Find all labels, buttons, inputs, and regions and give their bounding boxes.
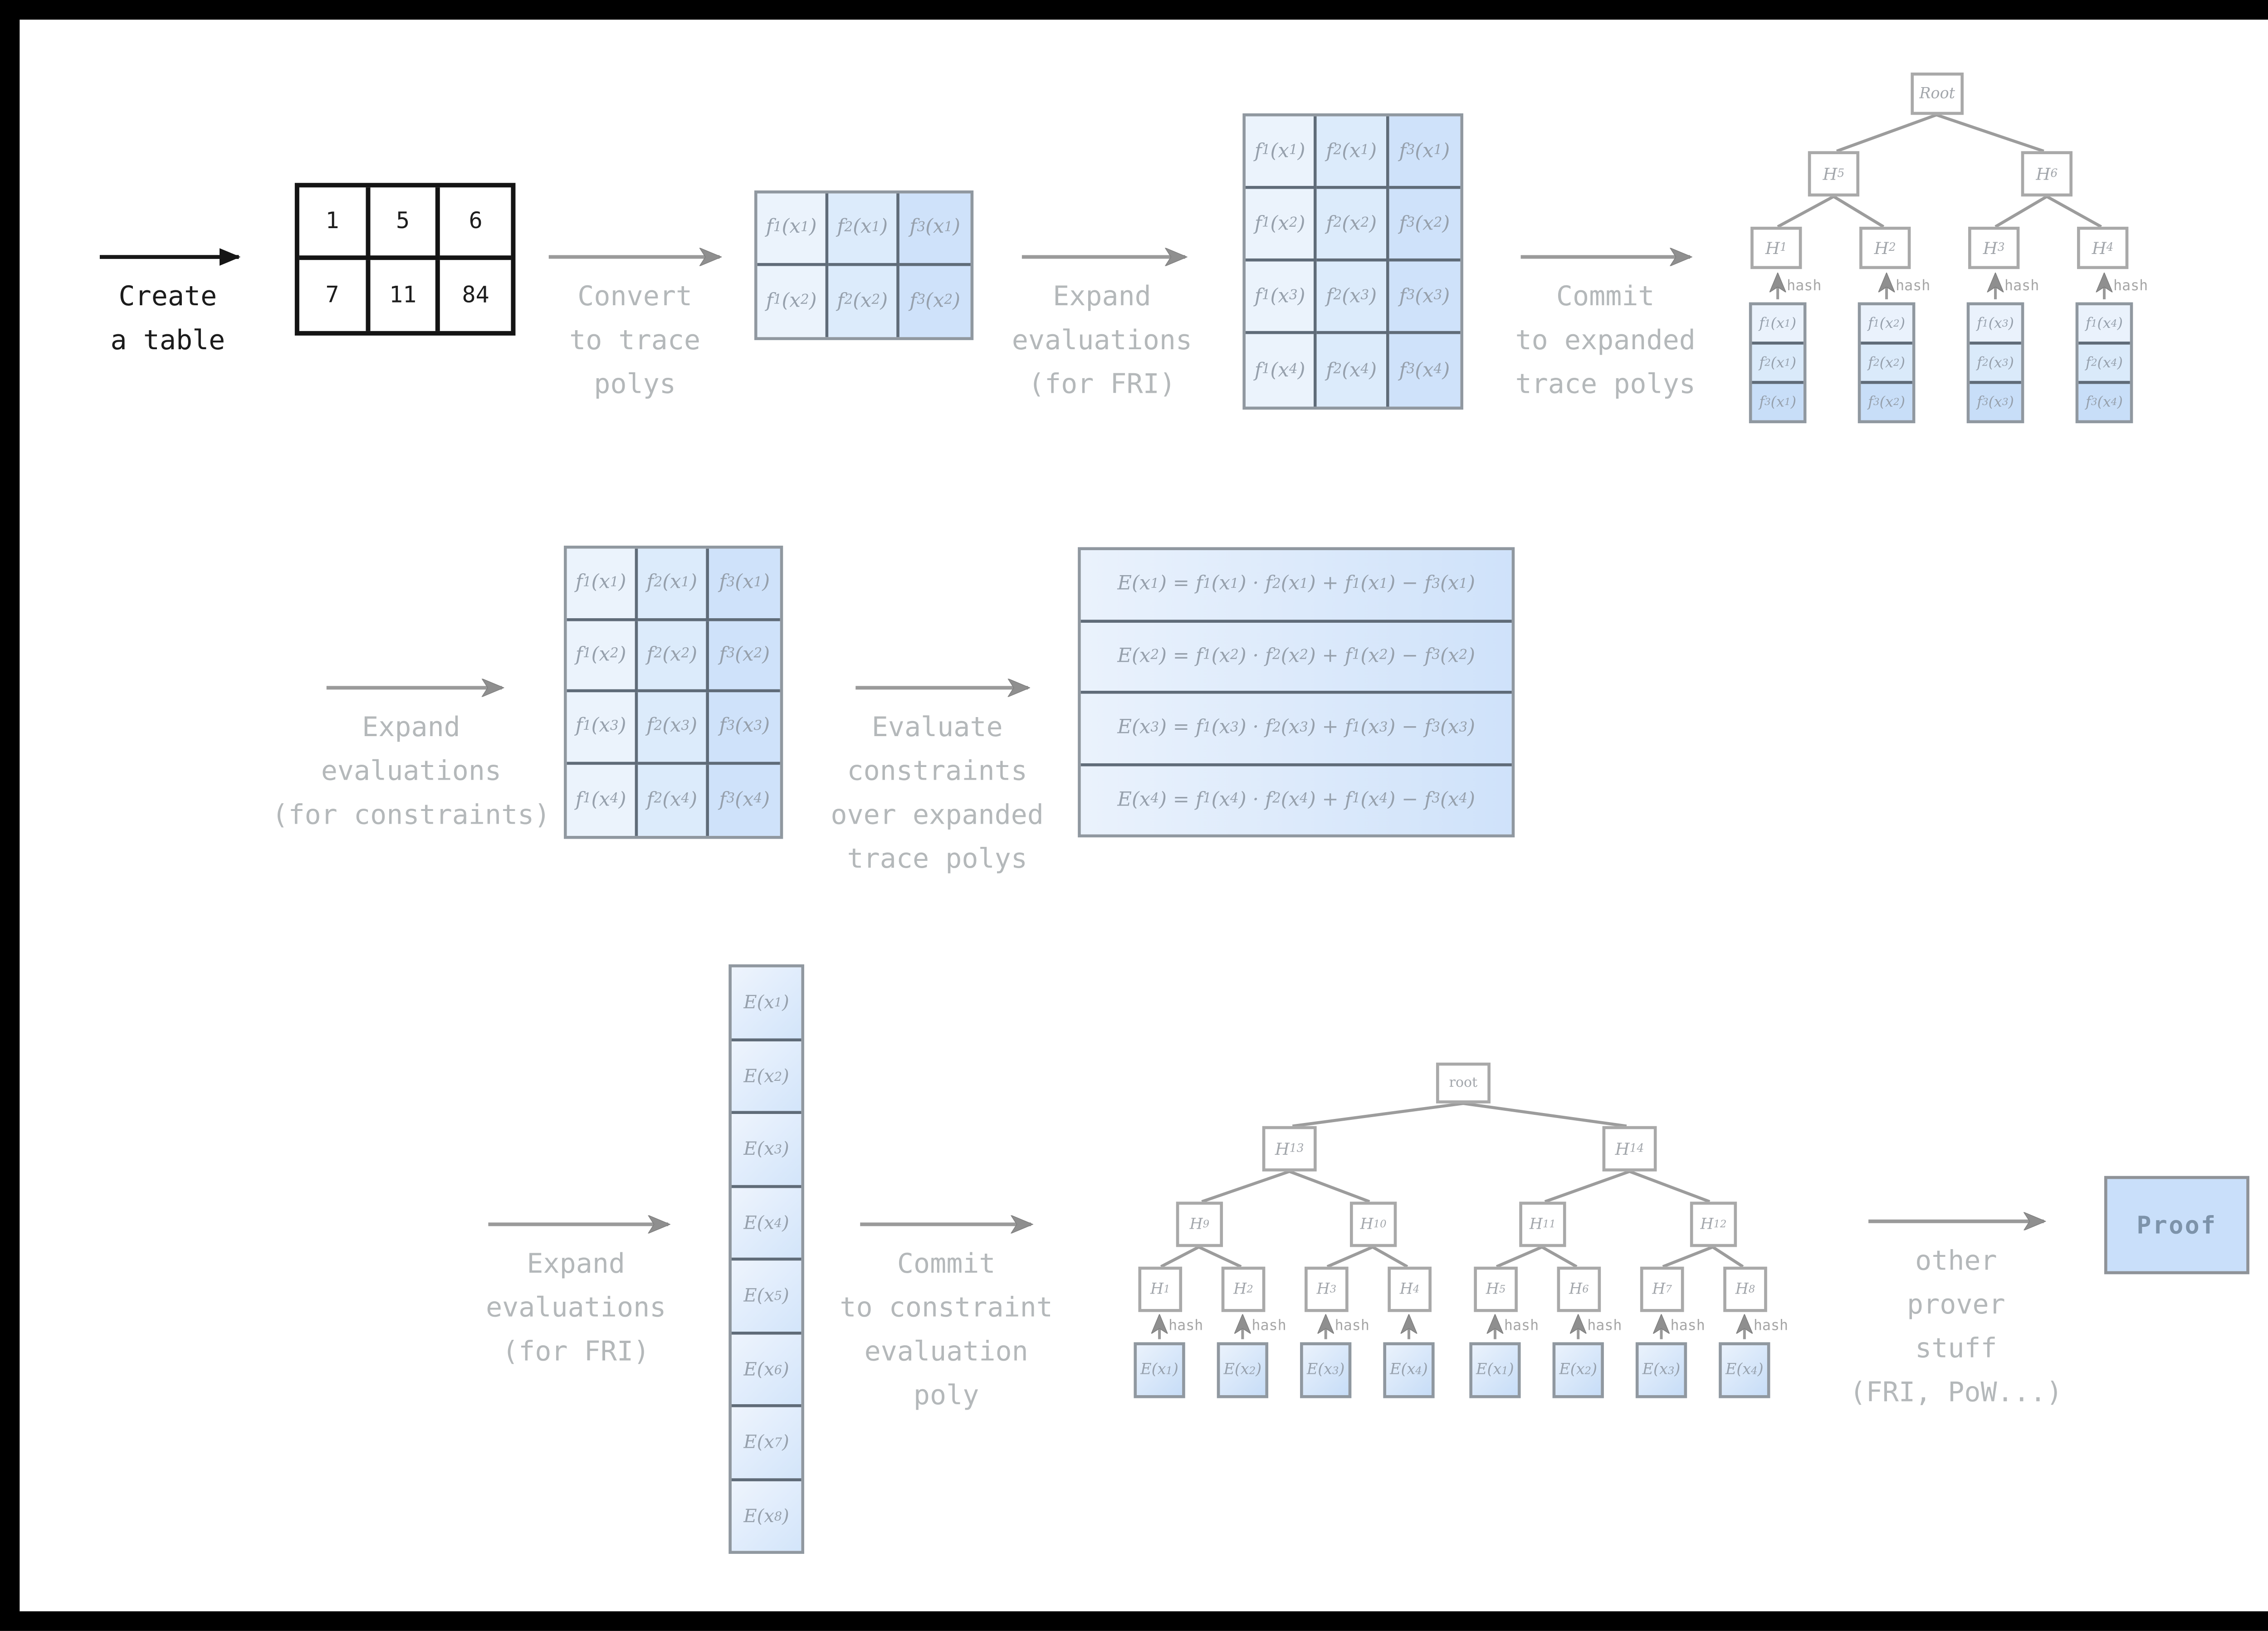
merkle1-leaf-stack-4: f1(x4) f2(x4) f3(x4)	[2076, 303, 2133, 424]
trace-cell: f3(x2)	[899, 265, 971, 337]
input-cell: 84	[440, 259, 511, 331]
stack-cell: f2(x2)	[1861, 345, 1912, 384]
merkle2-node-h7: H7	[1640, 1267, 1684, 1312]
stack-cell: f1(x1)	[1752, 305, 1803, 345]
trace-cell: f3(x1)	[1389, 117, 1461, 189]
constraint-equation: E(x3) = f1(x3) · f2(x3) + f1(x3) − f3(x3…	[1081, 694, 1512, 766]
e-cell: E(x6)	[732, 1334, 801, 1407]
step-label-convert-trace-polys: Convert to trace polys	[514, 275, 756, 407]
merkle2-hash-arrows	[1159, 1317, 1745, 1339]
hash-label: hash	[1168, 1318, 1203, 1335]
merkle2-node-h14: H14	[1603, 1126, 1657, 1172]
merkle2-leaf: E(x3)	[1300, 1342, 1351, 1398]
expanded-trace-table-constraints: f1(x1) f2(x1) f3(x1) f1(x2) f2(x2) f3(x2…	[564, 546, 783, 839]
hash-label: hash	[1504, 1318, 1539, 1335]
merkle2-node-h5: H5	[1474, 1267, 1518, 1312]
merkle1-leaf-stack-1: f1(x1) f2(x1) f3(x1)	[1749, 303, 1807, 424]
stack-cell: f2(x1)	[1752, 345, 1803, 384]
hash-label: hash	[1587, 1318, 1622, 1335]
merkle1-leaf-stack-3: f1(x3) f2(x3) f3(x3)	[1967, 303, 2024, 424]
hash-label: hash	[1251, 1318, 1286, 1335]
hash-label: hash	[1754, 1318, 1788, 1335]
merkle2-leaf: E(x4)	[1719, 1342, 1770, 1398]
step-label-expand-constraints: Expand evaluations (for constraints)	[230, 706, 593, 838]
step-label-expand-fri-1: Expand evaluations (for FRI)	[951, 275, 1253, 407]
e-cell: E(x5)	[732, 1260, 801, 1334]
hash-label: hash	[2004, 278, 2039, 295]
stack-cell: f2(x3)	[1970, 345, 2021, 384]
trace-cell: f2(x1)	[1317, 117, 1389, 189]
merkle2-node-h3: H3	[1305, 1267, 1349, 1312]
input-cell: 7	[299, 259, 370, 331]
stack-cell: f3(x2)	[1861, 384, 1912, 420]
step-label-other-prover-stuff: other prover stuff (FRI, PoW...)	[1805, 1240, 2107, 1416]
expanded-trace-table-fri: f1(x1) f2(x1) f3(x1) f1(x2) f2(x2) f3(x2…	[1242, 113, 1463, 410]
merkle2-leaf: E(x3)	[1636, 1342, 1687, 1398]
e-cell: E(x2)	[732, 1040, 801, 1114]
e-cell: E(x8)	[732, 1480, 801, 1551]
constraint-equation: E(x1) = f1(x1) · f2(x1) + f1(x1) − f3(x1…	[1081, 550, 1512, 622]
trace-cell: f3(x2)	[1389, 189, 1461, 262]
constraint-equation: E(x4) = f1(x4) · f2(x4) + f1(x4) − f3(x4…	[1081, 766, 1512, 835]
input-cell: 5	[370, 187, 440, 259]
constraint-equation: E(x2) = f1(x2) · f2(x2) + f1(x2) − f3(x2…	[1081, 622, 1512, 693]
merkle1-node-h1: H1	[1750, 227, 1802, 269]
merkle2-node-h11: H11	[1519, 1201, 1566, 1247]
merkle1-node-h2: H2	[1859, 227, 1911, 269]
stack-cell: f1(x4)	[2078, 305, 2130, 345]
e-cell: E(x4)	[732, 1187, 801, 1261]
trace-cell: f3(x3)	[709, 692, 780, 764]
merkle2-root-node: root	[1436, 1063, 1491, 1104]
trace-cell: f1(x4)	[567, 764, 638, 836]
step-label-commit-constraint: Commit to constraint evaluation poly	[795, 1242, 1098, 1419]
input-cell: 11	[370, 259, 440, 331]
trace-cell: f2(x1)	[638, 549, 709, 620]
e-cell: E(x7)	[732, 1407, 801, 1481]
merkle2-leaf: E(x4)	[1383, 1342, 1434, 1398]
proof-box: Proof	[2104, 1176, 2249, 1275]
merkle1-hash-arrows	[1778, 275, 2104, 299]
trace-cell: f2(x1)	[828, 194, 899, 265]
e-cell: E(x1)	[732, 967, 801, 1041]
trace-cell: f3(x4)	[1389, 334, 1461, 407]
step-label-expand-fri-2: Expand evaluations (for FRI)	[425, 1242, 727, 1374]
merkle2-node-h8: H8	[1723, 1267, 1767, 1312]
step-label-evaluate-constraints: Evaluate constraints over expanded trace…	[786, 706, 1089, 882]
trace-cell: f3(x2)	[709, 620, 780, 692]
merkle2-node-h2: H2	[1222, 1267, 1266, 1312]
hash-label: hash	[1671, 1318, 1705, 1335]
hash-label: hash	[2113, 278, 2148, 295]
merkle2-leaf: E(x2)	[1553, 1342, 1604, 1398]
trace-polys-table: f1(x1) f2(x1) f3(x1) f1(x2) f2(x2) f3(x2…	[754, 190, 973, 340]
e-cell: E(x3)	[732, 1114, 801, 1187]
step-label-commit-trace: Commit to expanded trace polys	[1454, 275, 1757, 407]
trace-cell: f3(x4)	[709, 764, 780, 836]
merkle2-node-h13: H13	[1262, 1126, 1317, 1172]
trace-cell: f3(x1)	[709, 549, 780, 620]
trace-cell: f2(x2)	[1317, 189, 1389, 262]
hash-label: hash	[1335, 1318, 1369, 1335]
merkle2-leaf: E(x2)	[1217, 1342, 1268, 1398]
input-cell: 1	[299, 187, 370, 259]
input-cell: 6	[440, 187, 511, 259]
trace-cell: f1(x3)	[1246, 262, 1317, 334]
merkle2-node-h6: H6	[1557, 1267, 1601, 1312]
trace-cell: f1(x3)	[567, 692, 638, 764]
merkle2-leaf: E(x1)	[1134, 1342, 1185, 1398]
merkle2-node-h9: H9	[1176, 1201, 1223, 1247]
constraint-equations-table: E(x1) = f1(x1) · f2(x1) + f1(x1) − f3(x1…	[1078, 547, 1515, 837]
merkle1-node-h5: H5	[1808, 151, 1859, 196]
trace-cell: f1(x1)	[567, 549, 638, 620]
merkle2-node-h12: H12	[1690, 1201, 1737, 1247]
trace-cell: f3(x3)	[1389, 262, 1461, 334]
stack-cell: f2(x4)	[2078, 345, 2130, 384]
constraint-eval-column: E(x1) E(x2) E(x3) E(x4) E(x5) E(x6) E(x7…	[728, 964, 804, 1554]
stark-prover-flow-diagram: Create a table Convert to trace polys Ex…	[0, 0, 2268, 1631]
merkle2-leaf: E(x1)	[1469, 1342, 1520, 1398]
hash-label: hash	[1896, 278, 1930, 295]
input-table: 1 5 6 7 11 84	[295, 183, 516, 336]
stack-cell: f3(x3)	[1970, 384, 2021, 420]
trace-cell: f2(x3)	[638, 692, 709, 764]
stack-cell: f1(x2)	[1861, 305, 1912, 345]
merkle1-node-h3: H3	[1968, 227, 2019, 269]
trace-cell: f1(x1)	[758, 194, 829, 265]
merkle1-node-h6: H6	[2021, 151, 2072, 196]
hash-label: hash	[1787, 278, 1821, 295]
stack-cell: f3(x4)	[2078, 384, 2130, 420]
merkle2-node-h1: H1	[1138, 1267, 1182, 1312]
trace-cell: f2(x2)	[828, 265, 899, 337]
merkle1-node-h4: H4	[2077, 227, 2128, 269]
trace-cell: f1(x4)	[1246, 334, 1317, 407]
trace-cell: f2(x4)	[638, 764, 709, 836]
merkle1-root-node: Root	[1911, 73, 1964, 115]
merkle1-leaf-stack-2: f1(x2) f2(x2) f3(x2)	[1858, 303, 1916, 424]
trace-cell: f2(x4)	[1317, 334, 1389, 407]
merkle2-node-h4: H4	[1388, 1267, 1432, 1312]
trace-cell: f2(x2)	[638, 620, 709, 692]
trace-cell: f3(x1)	[899, 194, 971, 265]
stack-cell: f1(x3)	[1970, 305, 2021, 345]
stack-cell: f3(x1)	[1752, 384, 1803, 420]
trace-cell: f1(x2)	[1246, 189, 1317, 262]
trace-cell: f1(x1)	[1246, 117, 1317, 189]
trace-cell: f1(x2)	[567, 620, 638, 692]
trace-cell: f2(x3)	[1317, 262, 1389, 334]
merkle2-node-h10: H10	[1350, 1201, 1397, 1247]
trace-cell: f1(x2)	[758, 265, 829, 337]
step-label-create-table: Create a table	[47, 275, 288, 363]
